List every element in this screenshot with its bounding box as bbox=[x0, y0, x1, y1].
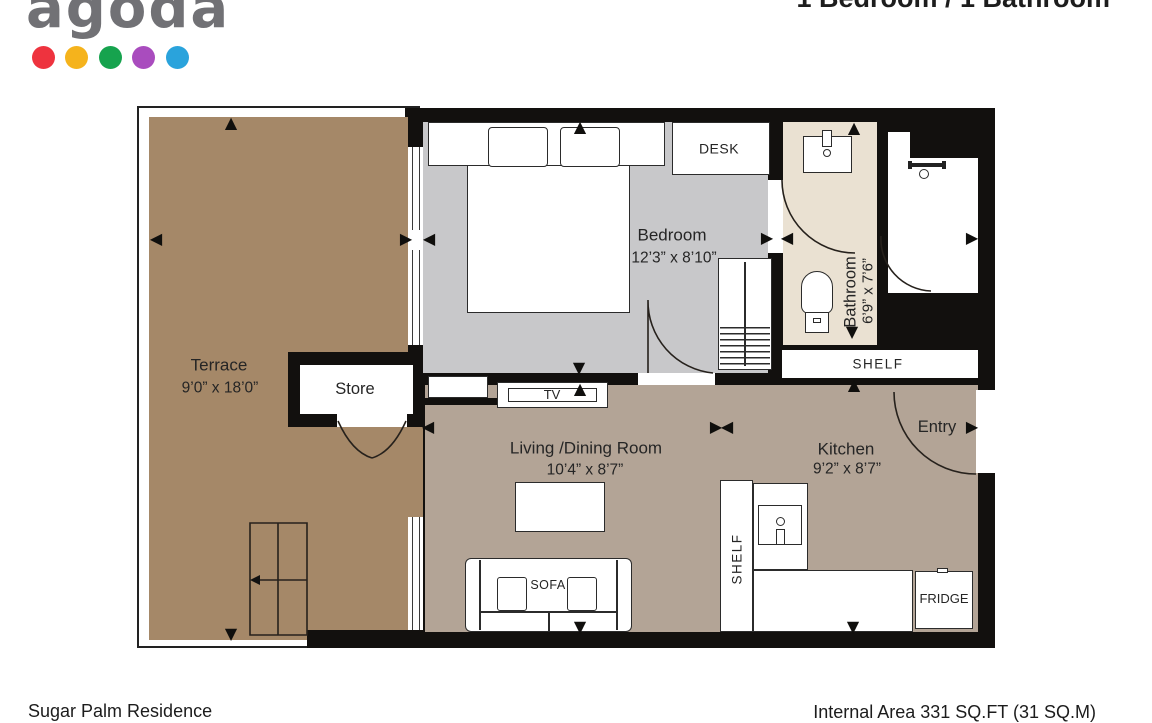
shower-head-tick bbox=[908, 161, 912, 169]
bathroom-faucet bbox=[822, 130, 832, 147]
sofa-arm bbox=[616, 560, 618, 630]
shower-head bbox=[919, 169, 929, 179]
shower-niche bbox=[888, 132, 910, 158]
shower-head-bar bbox=[910, 163, 944, 167]
terrace-dims: 9’0” x 18’0” bbox=[182, 379, 259, 396]
dimension-arrow-right: ▶ bbox=[966, 230, 978, 246]
shower-room bbox=[888, 158, 978, 293]
bathroom-label: Bathroom bbox=[842, 256, 861, 328]
shower-head-tick bbox=[942, 161, 946, 169]
pillow bbox=[560, 127, 620, 167]
dimension-arrow-down: ▼ bbox=[846, 324, 858, 340]
kitchen-tap bbox=[776, 517, 785, 526]
dimension-arrow-left: ◀ bbox=[423, 231, 435, 247]
entry-door-gap bbox=[976, 390, 995, 473]
living-dims: 10’4” x 8’7” bbox=[547, 461, 624, 478]
dimension-arrow-left: ◀ bbox=[721, 419, 733, 435]
floorplan: Terrace 9’0” x 18’0” Bedroom 12’3” x 8’1… bbox=[0, 0, 1152, 720]
sofa-pillow bbox=[567, 577, 597, 611]
dimension-arrow-up: ▲ bbox=[848, 120, 860, 136]
dimension-arrow-right: ▶ bbox=[761, 230, 773, 246]
entry-label: Entry bbox=[918, 418, 957, 436]
dimension-arrow-down: ▼ bbox=[225, 626, 237, 642]
entry-arrow-right: ▶ bbox=[966, 419, 978, 435]
dimension-arrow-up: ▲ bbox=[574, 119, 586, 135]
kitchen-dims: 9’2” x 8’7” bbox=[813, 460, 881, 477]
dimension-arrow-left: ◀ bbox=[781, 230, 793, 246]
dimension-arrow-up: ▲ bbox=[848, 377, 860, 393]
bedroom-window bbox=[408, 147, 423, 230]
bedroom-window bbox=[408, 250, 423, 345]
bathroom-dims: 6’9” x 7’6” bbox=[860, 258, 877, 324]
living-label: Living /Dining Room bbox=[510, 440, 662, 459]
kitchen-shelf-label: SHELF bbox=[730, 533, 745, 584]
tv-label: TV bbox=[544, 388, 561, 402]
bed bbox=[467, 165, 630, 313]
terrace-label: Terrace bbox=[191, 357, 248, 376]
dimension-arrow-left: ◀ bbox=[422, 419, 434, 435]
bedroom-door-gap bbox=[638, 373, 715, 385]
bedroom-label: Bedroom bbox=[638, 227, 707, 246]
kitchen-tap-handle bbox=[776, 529, 785, 545]
sofa-label: SOFA bbox=[530, 579, 565, 593]
living-window bbox=[408, 517, 423, 630]
store-door-gap bbox=[337, 412, 407, 427]
toilet-button bbox=[813, 318, 821, 323]
bathroom-drain bbox=[823, 149, 831, 157]
kitchen-counter bbox=[753, 570, 913, 632]
bottom-wall-left bbox=[307, 630, 423, 648]
fridge-label: FRIDGE bbox=[919, 592, 968, 606]
coffee-table bbox=[515, 482, 605, 532]
property-name: Sugar Palm Residence bbox=[28, 701, 212, 722]
dimension-arrow-up: ▲ bbox=[574, 381, 586, 397]
tv-recess-wall bbox=[423, 398, 497, 405]
dimension-arrow-right: ▶ bbox=[400, 231, 412, 247]
dimension-arrow-down: ▼ bbox=[574, 619, 586, 635]
sofa-seat-divider bbox=[548, 611, 550, 631]
kitchen-label: Kitchen bbox=[818, 441, 875, 460]
dimension-arrow-down: ▼ bbox=[573, 360, 585, 376]
dimension-arrow-up: ▲ bbox=[225, 115, 237, 131]
shelf-label: SHELF bbox=[852, 358, 903, 373]
desk-label: DESK bbox=[699, 141, 739, 156]
dimension-arrow-down: ▼ bbox=[847, 619, 859, 635]
store-label: Store bbox=[335, 380, 374, 398]
tv-recess bbox=[428, 376, 488, 398]
pillow bbox=[488, 127, 548, 167]
wardrobe-shelves bbox=[720, 327, 770, 367]
bedroom-dims: 12’3” x 8’10” bbox=[631, 249, 716, 266]
fridge-handle bbox=[937, 568, 948, 573]
toilet-bowl bbox=[801, 271, 833, 314]
dimension-arrow-left: ◀ bbox=[150, 231, 162, 247]
sofa-arm bbox=[479, 560, 481, 630]
sofa-pillow bbox=[497, 577, 527, 611]
